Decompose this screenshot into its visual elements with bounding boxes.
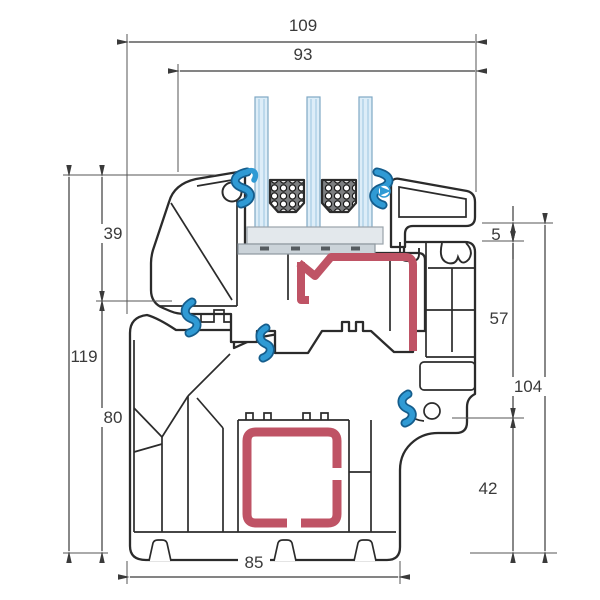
glass-pane (359, 97, 372, 245)
dim-label-57: 57 (490, 309, 509, 328)
dim-label-42: 42 (479, 479, 498, 498)
dim-label-85: 85 (245, 553, 264, 572)
dim-label-5: 5 (491, 225, 500, 244)
dim-label-119: 119 (70, 347, 97, 366)
window-profile-drawing: 109 93 39 119 80 5 57 104 42 85 (0, 0, 600, 600)
glazing-bead-outline (391, 179, 475, 247)
drawing-canvas: 109 93 39 119 80 5 57 104 42 85 (0, 0, 600, 600)
dim-label-104: 104 (514, 377, 542, 396)
glass-pane (307, 97, 320, 245)
glazing-panes (255, 97, 372, 245)
dim-label-93: 93 (294, 45, 313, 64)
setting-blocks (238, 227, 383, 254)
dim-label-109: 109 (289, 16, 317, 35)
setting-block-upper (247, 227, 383, 244)
dim-label-39: 39 (104, 224, 123, 243)
dim-label-80: 80 (104, 408, 123, 427)
